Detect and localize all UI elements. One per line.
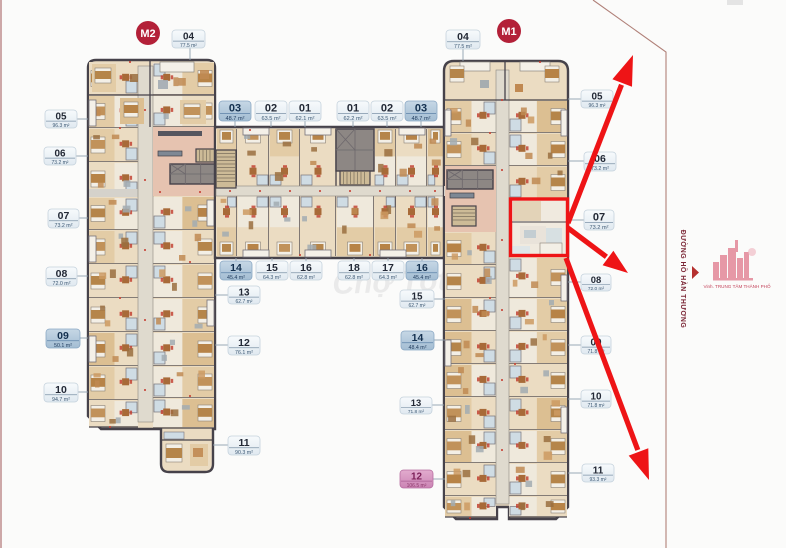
svg-text:96.3 m²: 96.3 m² bbox=[53, 123, 70, 129]
svg-text:18: 18 bbox=[348, 262, 360, 274]
svg-text:07: 07 bbox=[58, 210, 70, 222]
svg-text:48.4 m²: 48.4 m² bbox=[409, 345, 427, 351]
svg-text:73.2 m²: 73.2 m² bbox=[55, 223, 73, 229]
svg-text:14: 14 bbox=[412, 332, 424, 344]
svg-text:106.5 m²: 106.5 m² bbox=[407, 483, 427, 489]
svg-text:14: 14 bbox=[230, 262, 242, 274]
svg-text:04: 04 bbox=[183, 31, 194, 42]
svg-text:62.1 m²: 62.1 m² bbox=[296, 116, 315, 122]
svg-text:62.2 m²: 62.2 m² bbox=[344, 116, 363, 122]
svg-text:M2: M2 bbox=[140, 28, 155, 40]
svg-text:02: 02 bbox=[381, 102, 393, 114]
svg-text:73.2 m²: 73.2 m² bbox=[52, 160, 69, 166]
svg-text:62.7 m²: 62.7 m² bbox=[236, 299, 253, 305]
svg-text:72.0 m²: 72.0 m² bbox=[588, 286, 605, 292]
svg-text:05: 05 bbox=[56, 111, 67, 122]
svg-text:02: 02 bbox=[265, 102, 277, 114]
svg-text:09: 09 bbox=[57, 330, 69, 342]
svg-text:12: 12 bbox=[411, 471, 422, 482]
svg-text:77.5 m²: 77.5 m² bbox=[454, 44, 472, 50]
svg-text:62.8 m²: 62.8 m² bbox=[297, 275, 315, 281]
svg-text:71.8 m²: 71.8 m² bbox=[588, 403, 605, 409]
svg-text:73.2 m²: 73.2 m² bbox=[590, 225, 609, 231]
svg-text:45.4 m²: 45.4 m² bbox=[227, 275, 245, 281]
svg-text:76.1 m²: 76.1 m² bbox=[235, 350, 253, 356]
svg-text:11: 11 bbox=[593, 465, 604, 476]
svg-text:10: 10 bbox=[591, 391, 602, 402]
svg-text:17: 17 bbox=[382, 262, 394, 274]
svg-text:45.4 m²: 45.4 m² bbox=[413, 275, 431, 281]
svg-text:01: 01 bbox=[299, 102, 311, 114]
svg-text:01: 01 bbox=[347, 102, 359, 114]
svg-text:94.7 m²: 94.7 m² bbox=[52, 397, 70, 403]
svg-text:48.7 m²: 48.7 m² bbox=[226, 116, 245, 122]
svg-text:M1: M1 bbox=[501, 26, 516, 38]
svg-text:71.8 m²: 71.8 m² bbox=[408, 409, 425, 415]
svg-text:03: 03 bbox=[415, 102, 427, 114]
svg-text:96.3 m²: 96.3 m² bbox=[589, 103, 606, 109]
svg-text:90.3 m²: 90.3 m² bbox=[235, 450, 253, 456]
svg-text:16: 16 bbox=[416, 262, 428, 274]
svg-text:08: 08 bbox=[591, 274, 601, 285]
svg-text:64.3 m²: 64.3 m² bbox=[263, 275, 281, 281]
svg-text:77.5 m²: 77.5 m² bbox=[180, 43, 197, 49]
svg-text:13: 13 bbox=[411, 397, 421, 408]
svg-text:13: 13 bbox=[239, 287, 250, 298]
svg-text:72.0 m²: 72.0 m² bbox=[53, 281, 71, 287]
svg-text:15: 15 bbox=[266, 262, 278, 274]
svg-text:12: 12 bbox=[238, 337, 250, 349]
svg-text:06: 06 bbox=[55, 148, 66, 159]
svg-text:63.5 m²: 63.5 m² bbox=[262, 116, 281, 122]
svg-text:15: 15 bbox=[412, 291, 423, 302]
svg-text:07: 07 bbox=[593, 211, 605, 223]
svg-text:62.8 m²: 62.8 m² bbox=[345, 275, 363, 281]
svg-text:04: 04 bbox=[457, 31, 469, 43]
svg-text:10: 10 bbox=[55, 384, 67, 396]
svg-text:73.2 m²: 73.2 m² bbox=[591, 166, 609, 172]
svg-text:64.3 m²: 64.3 m² bbox=[379, 275, 397, 281]
svg-text:50.1 m²: 50.1 m² bbox=[54, 343, 72, 349]
svg-text:05: 05 bbox=[592, 91, 603, 102]
svg-text:93.3 m²: 93.3 m² bbox=[590, 477, 607, 483]
svg-text:08: 08 bbox=[56, 268, 68, 280]
svg-text:62.7 m²: 62.7 m² bbox=[409, 303, 426, 309]
svg-text:Vinh. TRUNG TÂM THÀNH PHỐ: Vinh. TRUNG TÂM THÀNH PHỐ bbox=[703, 283, 770, 289]
svg-text:16: 16 bbox=[300, 262, 312, 274]
svg-text:48.7 m²: 48.7 m² bbox=[412, 116, 431, 122]
svg-text:03: 03 bbox=[229, 102, 241, 114]
svg-text:63.5 m²: 63.5 m² bbox=[378, 116, 397, 122]
svg-text:11: 11 bbox=[238, 437, 249, 449]
